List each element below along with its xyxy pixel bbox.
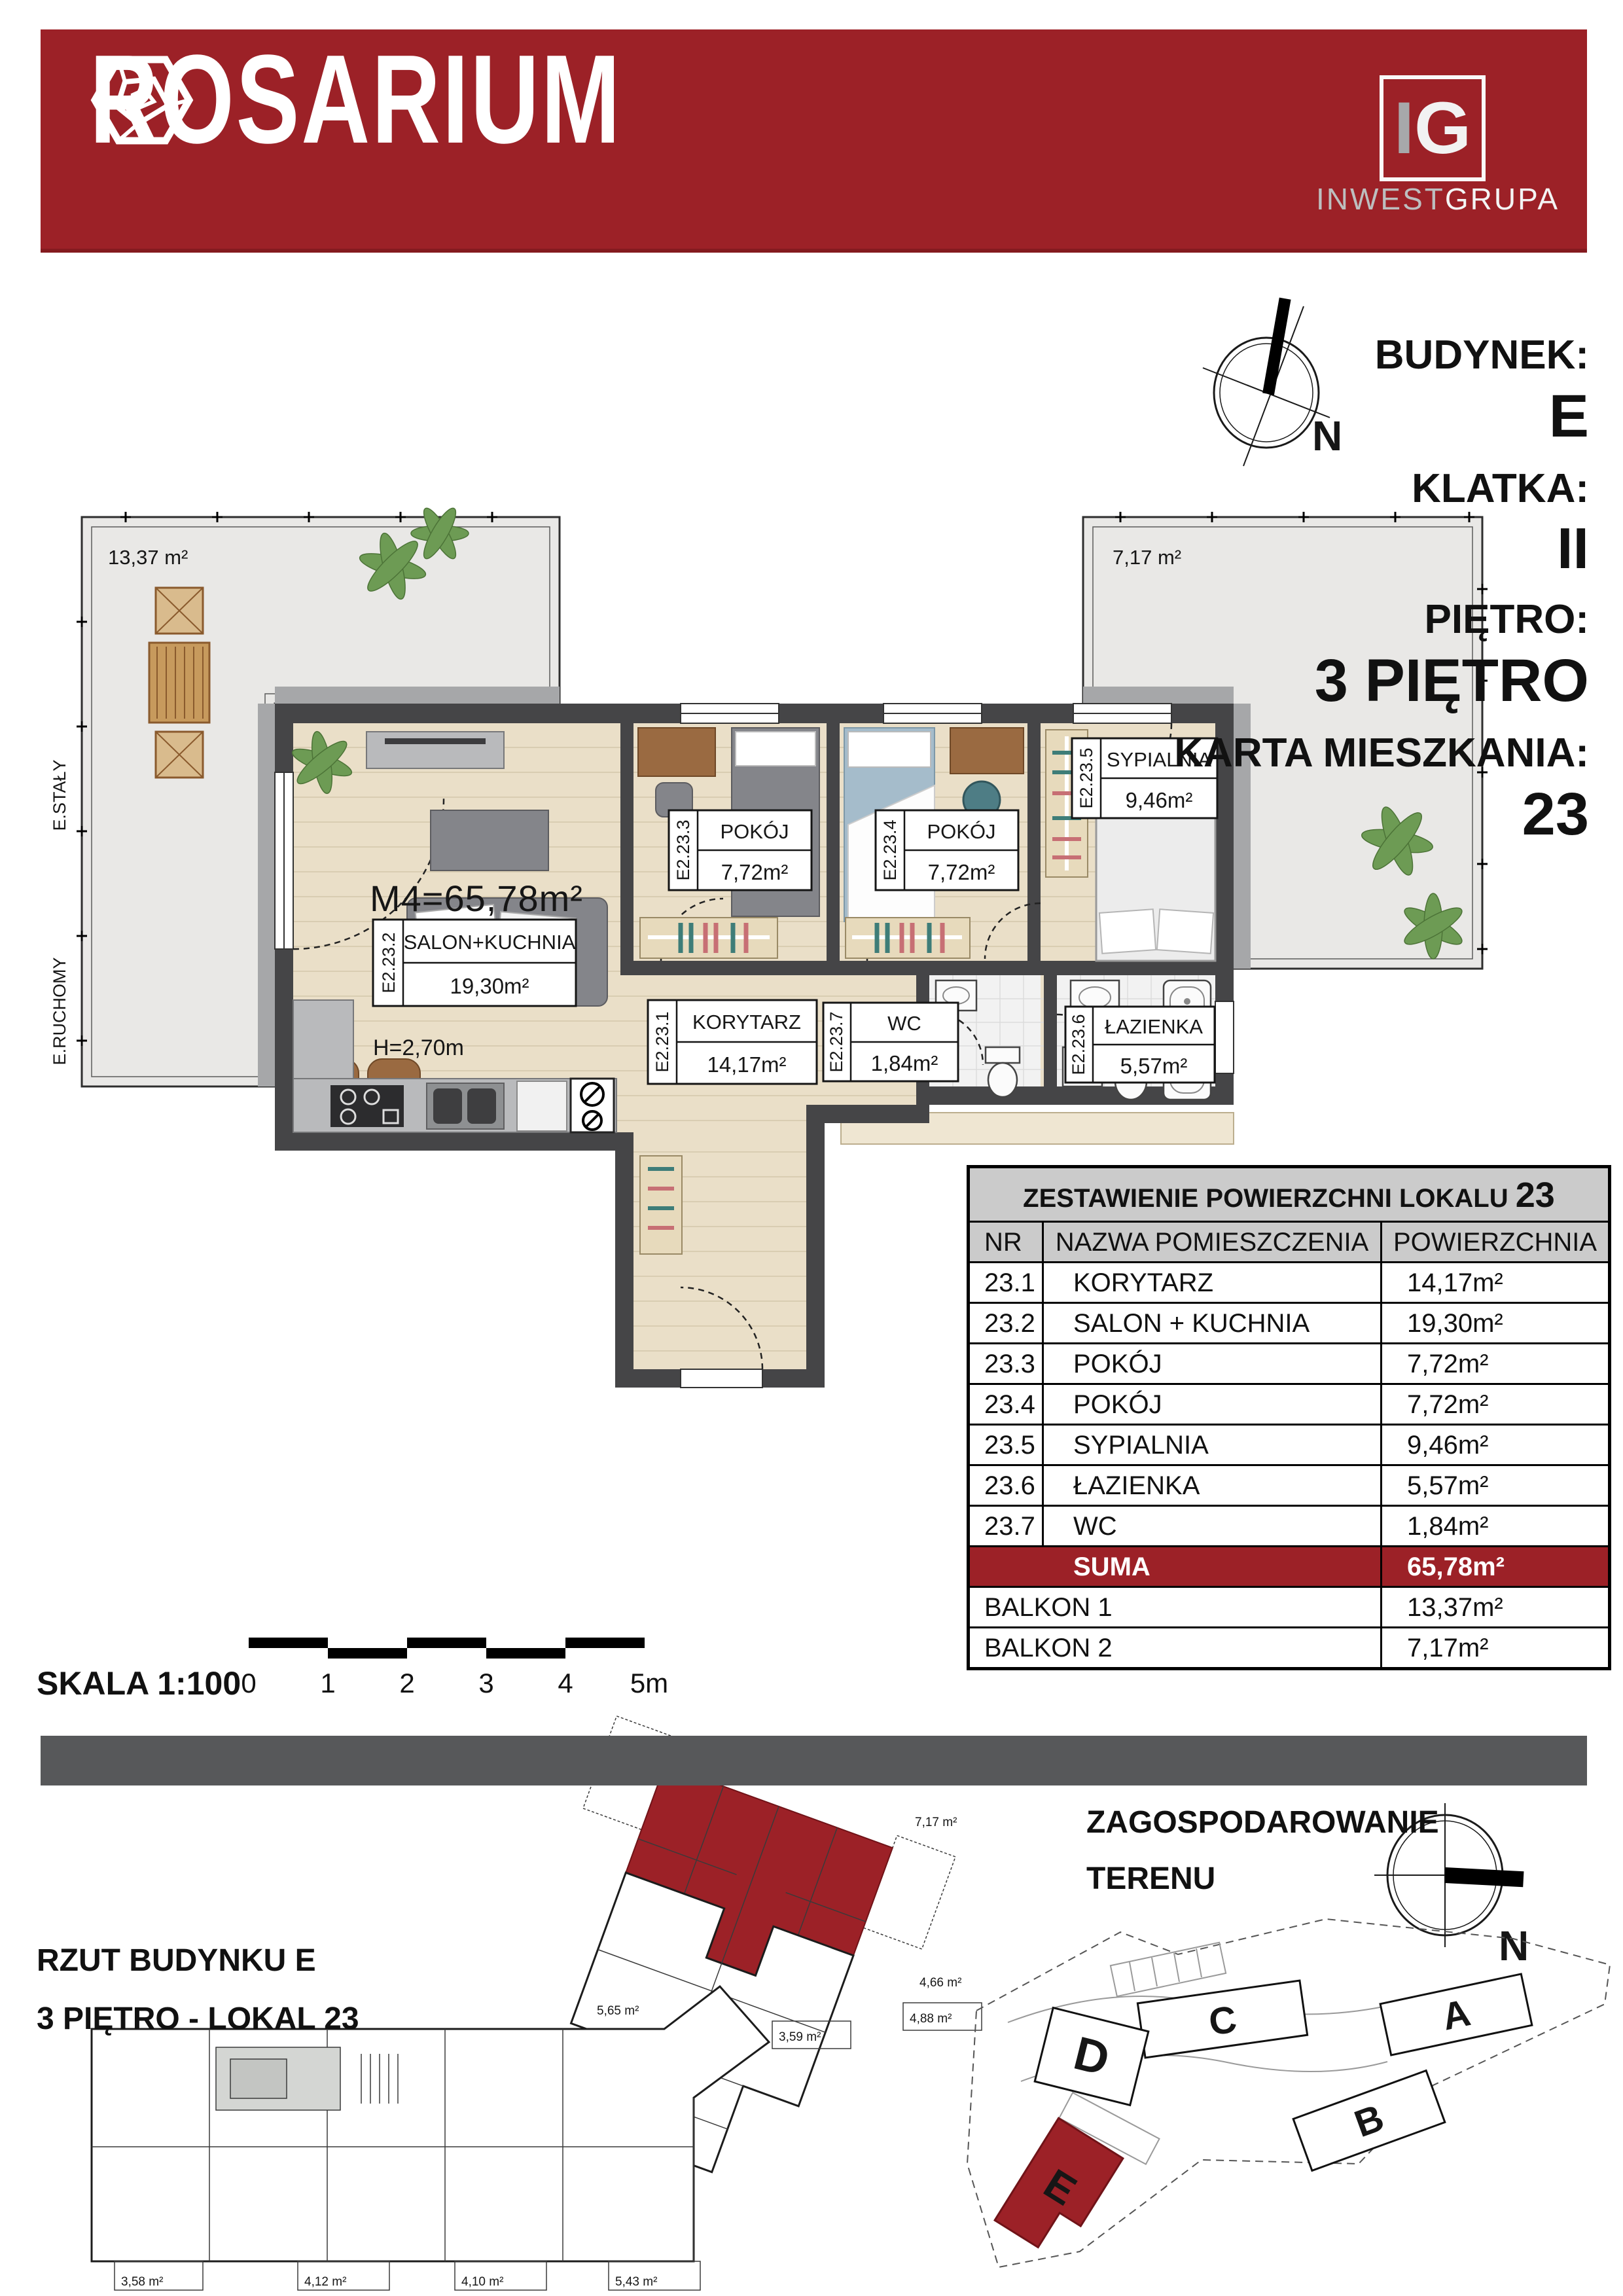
- edge-label-staly: E.STAŁY: [50, 759, 69, 831]
- tv-cabinet: [366, 732, 504, 768]
- wc-toilet-icon: [986, 1047, 1020, 1097]
- table-row: 23.3 POKÓJ 7,72m²: [970, 1342, 1608, 1383]
- table-suma-row: SUMA 65,78m²: [970, 1545, 1608, 1586]
- mini-balcony-label-0: 3,58 m²: [121, 2275, 163, 2289]
- mini-balcony-label-5: 3,59 m²: [779, 2030, 821, 2044]
- inwestgrupa-logo-icon: IG: [1380, 75, 1486, 181]
- terrace-furniture: [149, 588, 209, 778]
- washer-column-icon: [571, 1079, 614, 1132]
- inwestgrupa-wordmark: INWESTGRUPA: [1307, 181, 1569, 217]
- site-building-c: C: [1137, 1981, 1307, 2058]
- brand-title: ROSARIUM: [90, 37, 622, 163]
- corridor-furniture: [640, 1156, 682, 1254]
- building-plan-title: RZUT BUDYNKU E 3 PIĘTRO - LOKAL 23: [37, 1932, 359, 2049]
- svg-text:E2.23.7: E2.23.7: [827, 1011, 846, 1072]
- wardrobe-rack: [846, 918, 970, 958]
- room-label-lazienka: E2.23.6 ŁAZIENKA 5,57m²: [1065, 1007, 1215, 1083]
- site-building-d: D: [1035, 2008, 1149, 2106]
- col-header-powierzchnia: POWIERZCHNIA: [1382, 1223, 1608, 1261]
- table-title: ZESTAWIENIE POWIERZCHNI LOKALU: [1023, 1184, 1508, 1213]
- svg-text:C: C: [1206, 1998, 1240, 2043]
- klatka-value: II: [1174, 520, 1589, 577]
- table-balkon-row: BALKON 2 7,17m²: [970, 1626, 1608, 1667]
- karta-label: KARTA MIESZKANIA:: [1174, 733, 1589, 774]
- wardrobe-rack: [640, 918, 777, 958]
- svg-text:19,30m²: 19,30m²: [450, 974, 529, 998]
- svg-text:SALON+KUCHNIA: SALON+KUCHNIA: [404, 931, 576, 954]
- table-row: 23.4 POKÓJ 7,72m²: [970, 1383, 1608, 1424]
- room-label-korytarz: E2.23.1 KORYTARZ 14,17m²: [648, 1000, 817, 1084]
- pietro-label: PIĘTRO:: [1174, 600, 1589, 640]
- table-title-row: ZESTAWIENIE POWIERZCHNI LOKALU 23: [970, 1168, 1608, 1221]
- entrance-door: [681, 1369, 762, 1388]
- table-row: 23.6 ŁAZIENKA 5,57m²: [970, 1464, 1608, 1505]
- shoe-rack: [640, 1156, 682, 1254]
- svg-text:KORYTARZ: KORYTARZ: [692, 1011, 801, 1033]
- header-banner: ROSARIUM IG INWESTGRUPA: [41, 29, 1587, 253]
- mini-balcony-label-6: 4,88 m²: [910, 2012, 952, 2026]
- table-row: 23.2 SALON + KUCHNIA 19,30m²: [970, 1302, 1608, 1342]
- room-label-pokoj-1: E2.23.3 POKÓJ 7,72m²: [669, 810, 811, 890]
- desk: [950, 728, 1024, 774]
- room-label-wc: E2.23.7 WC 1,84m²: [823, 1003, 958, 1081]
- svg-text:E2.23.6: E2.23.6: [1069, 1014, 1088, 1075]
- apartment-info-panel: BUDYNEK: E KLATKA: II PIĘTRO: 3 PIĘTRO K…: [1174, 313, 1589, 844]
- mini-balcony-label-2: 4,10 m²: [461, 2275, 503, 2289]
- svg-text:POKÓJ: POKÓJ: [927, 820, 995, 843]
- table-row: 23.5 SYPIALNIA 9,46m²: [970, 1424, 1608, 1464]
- section-divider: [41, 1736, 1587, 1785]
- svg-text:1,84m²: 1,84m²: [871, 1051, 938, 1075]
- apartment-card-page: N: [0, 0, 1623, 2296]
- svg-text:WC: WC: [887, 1012, 921, 1035]
- hob-icon: [330, 1085, 404, 1127]
- svg-text:7,72m²: 7,72m²: [928, 860, 995, 884]
- room-label-pokoj-2: E2.23.4 POKÓJ 7,72m²: [876, 810, 1018, 890]
- terrace-table: [149, 643, 209, 723]
- svg-text:5,57m²: 5,57m²: [1120, 1054, 1188, 1078]
- balcony-2-area-label: 7,17 m²: [1113, 546, 1181, 569]
- height-label: H=2,70m: [373, 1035, 464, 1060]
- kitchen-cabinet: [517, 1081, 567, 1131]
- mini-wing-label-3: 4,66 m²: [919, 1976, 961, 1990]
- room-label-salon: E2.23.2 SALON+KUCHNIA 19,30m²: [373, 920, 576, 1006]
- svg-text:ŁAZIENKA: ŁAZIENKA: [1105, 1015, 1203, 1038]
- scale-bar: 0 1 2 3 4 5m: [249, 1638, 645, 1660]
- coffee-table: [431, 810, 548, 870]
- col-header-nr: NR: [970, 1223, 1044, 1261]
- compass-n-label-2: N: [1499, 1922, 1529, 1969]
- svg-text:7,72m²: 7,72m²: [721, 860, 789, 884]
- mini-elevator: [230, 2059, 287, 2098]
- area-summary-table: ZESTAWIENIE POWIERZCHNI LOKALU 23 NR NAZ…: [967, 1165, 1611, 1670]
- svg-text:14,17m²: 14,17m²: [707, 1052, 786, 1077]
- site-building-b: B: [1293, 2071, 1445, 2171]
- budynek-value: E: [1174, 386, 1589, 446]
- edge-label-ruchomy: E.RUCHOMY: [50, 957, 69, 1065]
- col-header-nazwa: NAZWA POMIESZCZENIA: [1044, 1223, 1382, 1261]
- svg-text:E2.23.5: E2.23.5: [1077, 747, 1096, 808]
- mini-wing-label-2: 5,65 m²: [597, 2004, 639, 2018]
- balcony-1-area-label: 13,37 m²: [108, 546, 188, 569]
- m4-total-label: M4=65,78m²: [370, 878, 583, 919]
- svg-text:E2.23.4: E2.23.4: [880, 819, 900, 880]
- svg-text:E2.23.3: E2.23.3: [673, 819, 693, 880]
- budynek-label: BUDYNEK:: [1174, 335, 1589, 376]
- svg-text:E2.23.2: E2.23.2: [379, 932, 399, 993]
- table-title-number: 23: [1516, 1175, 1555, 1215]
- pietro-value: 3 PIĘTRO: [1174, 651, 1589, 711]
- wall-edge-band: [275, 687, 560, 704]
- sink-icon: [427, 1083, 504, 1129]
- desk: [638, 728, 715, 776]
- suma-value: 65,78m²: [1382, 1547, 1608, 1586]
- site-building-a: A: [1380, 1974, 1532, 2055]
- table-header-row: NR NAZWA POMIESZCZENIA POWIERZCHNIA: [970, 1221, 1608, 1261]
- table-row: 23.1 KORYTARZ 14,17m²: [970, 1261, 1608, 1302]
- svg-text:POKÓJ: POKÓJ: [720, 820, 789, 843]
- site-plan-title: ZAGOSPODAROWANIE TERENU: [1086, 1795, 1439, 1908]
- site-building-e: E: [995, 2118, 1123, 2261]
- klatka-label: KLATKA:: [1174, 469, 1589, 509]
- mini-balcony-label-3: 5,43 m²: [615, 2275, 657, 2289]
- suma-label: SUMA: [1044, 1547, 1382, 1586]
- scale-label: SKALA 1:100: [37, 1664, 241, 1702]
- bathroom-window: [1215, 1001, 1234, 1073]
- svg-text:E2.23.1: E2.23.1: [652, 1011, 672, 1072]
- mini-balcony-label-1: 4,12 m²: [304, 2275, 346, 2289]
- table-balkon-row: BALKON 1 13,37m²: [970, 1586, 1608, 1626]
- kitchen-counter-left: [293, 1000, 353, 1079]
- karta-value: 23: [1174, 784, 1589, 844]
- table-row: 23.7 WC 1,84m²: [970, 1505, 1608, 1545]
- mini-wing-label-1: 7,17 m²: [915, 1816, 957, 1829]
